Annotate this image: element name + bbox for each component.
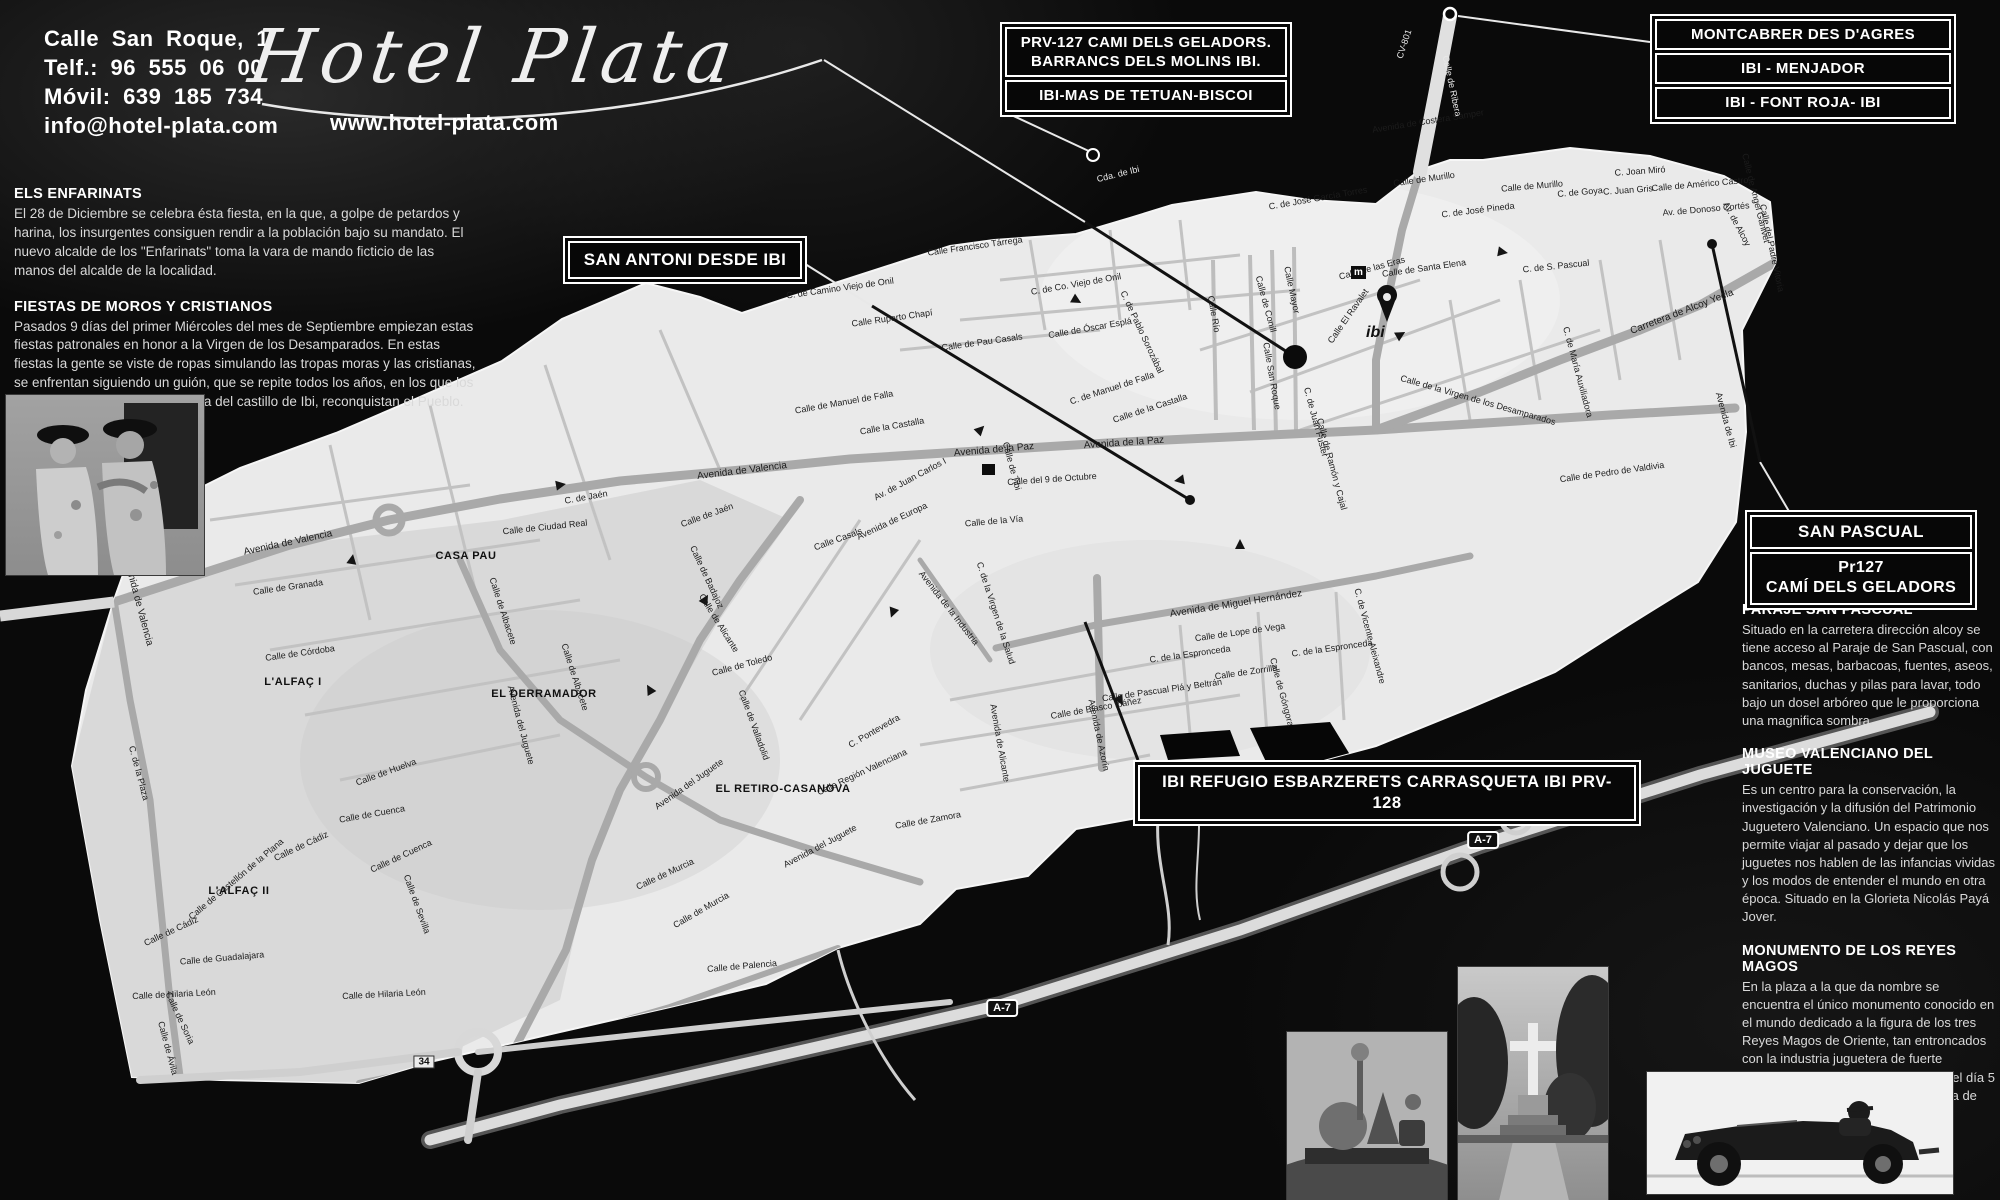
hotel-website: www.hotel-plata.com [330, 110, 559, 136]
trail-dot [1087, 149, 1099, 161]
ibi-place-label: ibi [1366, 324, 1385, 342]
right-text-column: PARAJE SAN PASCUAL Situado en la carrete… [1742, 602, 1996, 1139]
san-pascual-title: SAN PASCUAL [1750, 515, 1972, 549]
museum-icon: m [1351, 266, 1366, 279]
callout-san-antoni: SAN ANTONI DESDE IBI [563, 236, 807, 284]
prv127-route-line3: IBI-MAS DE TETUAN-BISCOI [1005, 80, 1287, 111]
article-title: MUSEO VALENCIANO DEL JUGUETE [1742, 746, 1996, 778]
callout-san-pascual: SAN PASCUAL Pr127 CAMÍ DELS GELADORS [1745, 510, 1977, 610]
route-badge-a-7: A-7 [986, 999, 1018, 1017]
district-label: CASA PAU [435, 550, 496, 562]
hotel-mobile: Móvil: 639 185 734 [44, 82, 278, 111]
route-badge-a-7: A-7 [1467, 831, 1499, 849]
article-body: El 28 de Diciembre se celebra ésta fiest… [14, 205, 476, 281]
toy-monument-photo [1287, 1032, 1447, 1200]
callout-montcabrer: MONTCABRER DES D'AGRES IBI - MENJADOR IB… [1650, 14, 1956, 124]
san-pascual-route-code: Pr127 [1760, 558, 1962, 578]
ibi-refugio-label: IBI REFUGIO ESBARZERETS CARRASQUETA IBI … [1138, 765, 1636, 821]
article-title: ELS ENFARINATS [14, 186, 476, 202]
prv127-route-line1: PRV-127 CAMI DELS GELADORS. [1015, 33, 1277, 52]
route-badge-34: 34 [413, 1056, 434, 1069]
hotel-plata-logo: Hotel Plata [244, 14, 743, 100]
prv127-route-line2: BARRANCS DELS MOLINS IBI. [1015, 52, 1277, 71]
san-antoni-label: SAN ANTONI DESDE IBI [568, 241, 802, 279]
trailhead-ring-icon [1444, 8, 1456, 20]
district-label: L'ALFAÇ I [264, 676, 322, 688]
district-label: EL DERRAMADOR [491, 688, 596, 700]
callout-ibi-refugio: IBI REFUGIO ESBARZERETS CARRASQUETA IBI … [1133, 760, 1641, 826]
article-title: MONUMENTO DE LOS REYES MAGOS [1742, 943, 1996, 975]
san-pascual-route-name: CAMÍ DELS GELADORS [1760, 578, 1962, 598]
hotel-address: Calle San Roque, 1 [44, 24, 278, 53]
trail-start-dot [1283, 345, 1307, 369]
hotel-phone: Telf.: 96 555 06 00 [44, 53, 278, 82]
district-label: EL RETIRO-CASANOVA [715, 783, 850, 795]
article-body: Situado en la carretera dirección alcoy … [1742, 621, 1996, 730]
brochure-map-page: CV-801Calle de RiberaAvenida de Costera … [0, 0, 2000, 1200]
hotel-email: info@hotel-plata.com [44, 111, 278, 140]
montcabrer-route2: IBI - MENJADOR [1655, 53, 1951, 84]
cross-monument-photo [1458, 967, 1608, 1200]
road-cv801 [1420, 16, 1450, 172]
left-text-column: ELS ENFARINATS El 28 de Diciembre se cel… [14, 186, 476, 430]
els-enfarinats-photo [6, 395, 204, 575]
article-body: Es un centro para la conservación, la in… [1742, 781, 1996, 927]
montcabrer-route3: IBI - FONT ROJA- IBI [1655, 87, 1951, 118]
vintage-race-car-photo [1647, 1072, 1953, 1194]
callout-prv127: PRV-127 CAMI DELS GELADORS. BARRANCS DEL… [1000, 22, 1292, 117]
hotel-contact-block: Calle San Roque, 1 Telf.: 96 555 06 00 M… [44, 24, 278, 140]
station-icon [982, 464, 995, 475]
article-title: FIESTAS DE MOROS Y CRISTIANOS [14, 299, 476, 315]
montcabrer-route1: MONTCABRER DES D'AGRES [1655, 19, 1951, 50]
district-label: L'ALFAÇ II [208, 885, 269, 897]
